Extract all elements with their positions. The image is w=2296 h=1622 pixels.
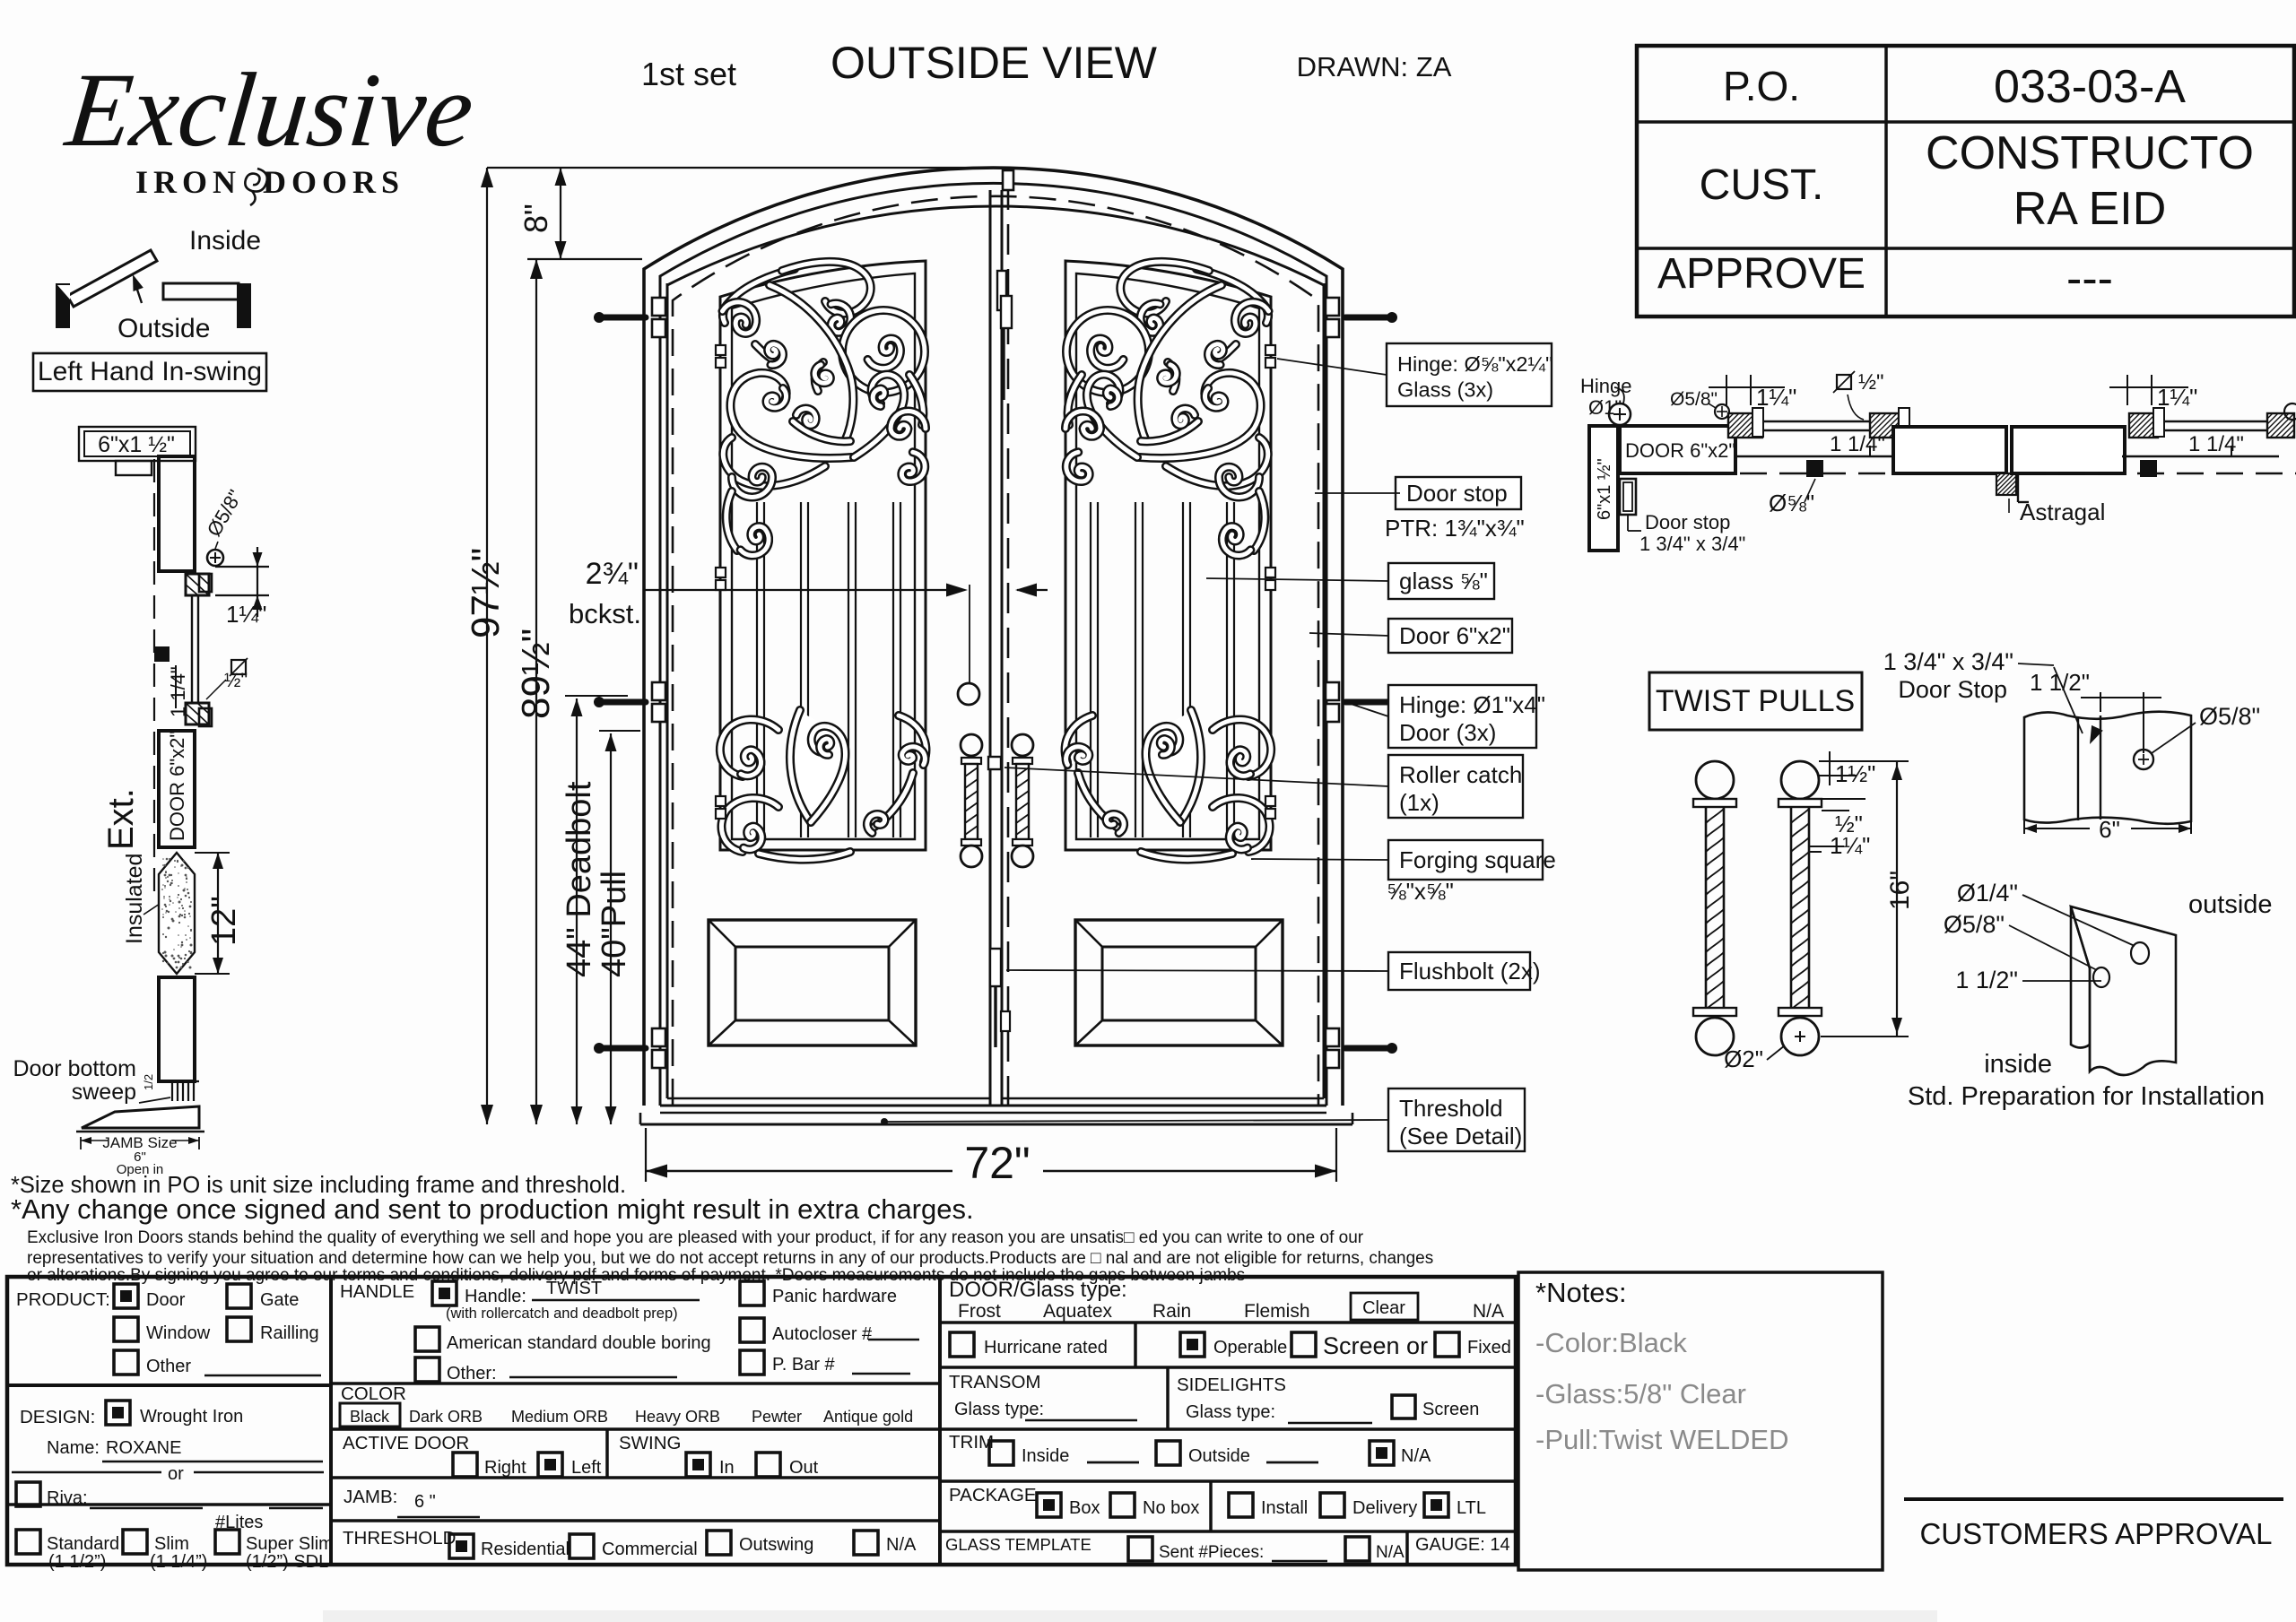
svg-text:DOOR/Glass type:: DOOR/Glass type: — [949, 1278, 1127, 1302]
svg-text:Door (3x): Door (3x) — [1399, 719, 1496, 746]
svg-text:Commercial: Commercial — [602, 1540, 698, 1559]
svg-text:glass ⅝": glass ⅝" — [1399, 568, 1488, 594]
svg-text:SWING: SWING — [619, 1433, 681, 1453]
svg-text:Name:: Name: — [47, 1438, 100, 1458]
svg-text:Medium ORB: Medium ORB — [511, 1408, 608, 1426]
svg-text:Door bottom: Door bottom — [13, 1056, 136, 1081]
svg-text:(1/2”) SDL: (1/2”) SDL — [246, 1552, 328, 1572]
svg-text:---: --- — [2066, 253, 2113, 305]
svg-text:(See Detail): (See Detail) — [1399, 1123, 1522, 1149]
svg-text:Flushbolt (2x): Flushbolt (2x) — [1399, 958, 1541, 984]
svg-text:1st set: 1st set — [641, 56, 736, 92]
svg-text:Out: Out — [789, 1458, 819, 1478]
svg-text:Outswing: Outswing — [739, 1535, 813, 1555]
svg-text:8": 8" — [517, 204, 554, 233]
svg-text:COLOR: COLOR — [341, 1383, 406, 1404]
svg-text:Outside: Outside — [1188, 1446, 1250, 1466]
svg-text:Panic hardware: Panic hardware — [772, 1287, 897, 1306]
svg-text:CONSTRUCTO: CONSTRUCTO — [1926, 127, 2254, 179]
svg-text:Exclusive: Exclusive — [59, 51, 479, 169]
svg-text:72": 72" — [964, 1138, 1030, 1188]
svg-text:ROXANE: ROXANE — [106, 1438, 181, 1458]
svg-text:representatives to verify your: representatives to verify your situation… — [27, 1249, 1433, 1268]
svg-text:6": 6" — [2099, 816, 2120, 843]
svg-text:Dark ORB: Dark ORB — [409, 1408, 483, 1426]
svg-text:N/A: N/A — [1376, 1543, 1405, 1562]
svg-text:DOOR 6"x2": DOOR 6"x2" — [1625, 439, 1735, 462]
svg-text:Frost: Frost — [958, 1301, 1001, 1322]
svg-text:033-03-A: 033-03-A — [1994, 61, 2186, 113]
svg-text:1¼": 1¼" — [1756, 384, 1796, 411]
svg-text:Left: Left — [571, 1458, 602, 1478]
svg-text:(1 1/2”): (1 1/2”) — [48, 1552, 106, 1572]
svg-text:Door: Door — [146, 1290, 186, 1310]
svg-text:1 1/2": 1 1/2" — [1955, 967, 2018, 993]
svg-text:12": 12" — [205, 896, 243, 946]
svg-text:½": ½" — [224, 669, 248, 691]
svg-text:Ø1": Ø1" — [1588, 396, 1622, 419]
svg-text:1 1/2": 1 1/2" — [2030, 669, 2090, 696]
svg-text:DESIGN:: DESIGN: — [20, 1407, 95, 1427]
svg-text:No box: No box — [1143, 1498, 1199, 1518]
svg-text:Black: Black — [350, 1408, 390, 1426]
svg-text:P.O.: P.O. — [1723, 63, 1800, 109]
svg-text:Ø2": Ø2" — [1724, 1045, 1763, 1072]
svg-text:Forging square: Forging square — [1399, 846, 1556, 873]
svg-text:PRODUCT:: PRODUCT: — [16, 1289, 110, 1310]
svg-text:Glass (3x): Glass (3x) — [1397, 378, 1493, 402]
svg-text:16": 16" — [1885, 871, 1915, 910]
svg-text:Operable: Operable — [1213, 1338, 1287, 1357]
svg-text:Door Stop: Door Stop — [1898, 676, 2007, 703]
svg-text:Super Slim: Super Slim — [246, 1534, 334, 1554]
svg-text:GLASS TEMPLATE: GLASS TEMPLATE — [945, 1535, 1091, 1554]
svg-text:TRANSOM: TRANSOM — [949, 1372, 1041, 1392]
svg-text:(1 1/4”): (1 1/4”) — [150, 1552, 207, 1572]
svg-text:sweep: sweep — [72, 1080, 136, 1105]
svg-text:or: or — [168, 1464, 184, 1484]
svg-text:Slim: Slim — [154, 1534, 189, 1554]
svg-text:In: In — [719, 1458, 735, 1478]
svg-text:1 1/4": 1 1/4" — [1830, 432, 1885, 456]
svg-text:inside: inside — [1984, 1050, 2052, 1079]
svg-text:American standard double borin: American standard double boring — [447, 1333, 711, 1353]
svg-text:Fixed: Fixed — [1467, 1338, 1511, 1357]
svg-text:1 3/4" x 3/4": 1 3/4" x 3/4" — [1639, 533, 1745, 555]
svg-text:1/2: 1/2 — [142, 1074, 155, 1090]
svg-text:1¼": 1¼" — [226, 601, 266, 628]
svg-text:Ø5/8": Ø5/8" — [1944, 911, 2005, 938]
svg-text:40"Pull: 40"Pull — [596, 871, 633, 977]
svg-text:Astragal: Astragal — [2020, 499, 2105, 525]
svg-text:Door 6"x2": Door 6"x2" — [1399, 622, 1510, 649]
svg-text:Residential: Residential — [481, 1540, 570, 1559]
svg-text:CUST.: CUST. — [1700, 161, 1824, 209]
svg-text:⅝"x⅝": ⅝"x⅝" — [1387, 878, 1454, 905]
svg-text:CUSTOMERS APPROVAL: CUSTOMERS APPROVAL — [1919, 1517, 2272, 1550]
svg-text:Threshold: Threshold — [1399, 1095, 1503, 1122]
svg-text:IRON: IRON — [135, 164, 241, 200]
svg-text:Delivery: Delivery — [1352, 1498, 1417, 1518]
svg-text:TRIM: TRIM — [949, 1432, 994, 1453]
svg-text:Ø5/8": Ø5/8" — [2199, 703, 2260, 730]
svg-text:(1x): (1x) — [1399, 789, 1439, 816]
svg-text:Inside: Inside — [189, 226, 261, 256]
svg-text:Box: Box — [1069, 1498, 1100, 1518]
svg-text:Autocloser #: Autocloser # — [772, 1324, 873, 1344]
svg-text:N/A: N/A — [1401, 1446, 1431, 1466]
svg-text:Door stop: Door stop — [1406, 480, 1508, 507]
svg-text:Outside: Outside — [117, 314, 210, 343]
svg-text:Glass type:: Glass type: — [1186, 1402, 1275, 1422]
svg-text:Sent #Pieces:: Sent #Pieces: — [1159, 1543, 1264, 1562]
svg-text:bckst.: bckst. — [569, 598, 641, 629]
svg-text:Std. Preparation for Installat: Std. Preparation for Installation — [1908, 1082, 2265, 1111]
svg-text:Clear: Clear — [1362, 1298, 1405, 1318]
svg-text:Ø⅝": Ø⅝" — [1769, 490, 1814, 516]
svg-text:N/A: N/A — [1473, 1301, 1504, 1322]
svg-text:6 ": 6 " — [414, 1492, 436, 1512]
svg-text:Antique gold: Antique gold — [823, 1408, 913, 1426]
svg-text:Window: Window — [146, 1323, 211, 1343]
svg-text:2¾": 2¾" — [586, 557, 639, 591]
svg-text:SIDELIGHTS: SIDELIGHTS — [1177, 1375, 1286, 1395]
svg-text:1½": 1½" — [1835, 760, 1875, 787]
svg-text:ACTIVE DOOR: ACTIVE DOOR — [343, 1433, 469, 1453]
svg-text:Flemish: Flemish — [1244, 1301, 1310, 1322]
svg-text:-Pull:Twist WELDED: -Pull:Twist WELDED — [1535, 1424, 1788, 1455]
svg-text:Gate: Gate — [260, 1290, 299, 1310]
svg-text:*Any change once signed and se: *Any change once signed and sent to prod… — [11, 1193, 974, 1225]
svg-text:P. Bar #: P. Bar # — [772, 1355, 836, 1375]
svg-text:PTR: 1¾"x¾": PTR: 1¾"x¾" — [1385, 515, 1525, 542]
svg-text:6"x1 ½": 6"x1 ½" — [1595, 458, 1614, 520]
svg-text:½": ½" — [1858, 370, 1884, 395]
svg-text:Inside: Inside — [1022, 1446, 1069, 1466]
svg-text:Rain: Rain — [1152, 1301, 1191, 1322]
svg-text:TWIST: TWIST — [546, 1279, 602, 1298]
svg-text:TWIST PULLS: TWIST PULLS — [1656, 684, 1855, 718]
svg-text:JAMB:: JAMB: — [344, 1487, 397, 1507]
svg-text:Insulated: Insulated — [122, 854, 147, 944]
svg-text:N/A: N/A — [886, 1535, 917, 1555]
svg-text:1 1/4": 1 1/4" — [2188, 432, 2244, 456]
svg-text:Screen: Screen — [1422, 1400, 1479, 1419]
svg-text:(with rollercatch and deadbolt: (with rollercatch and deadbolt prep) — [446, 1305, 678, 1322]
svg-text:*Notes:: *Notes: — [1535, 1277, 1627, 1308]
svg-text:Ø1/4": Ø1/4" — [1957, 880, 2018, 906]
svg-text:89½": 89½" — [514, 629, 558, 719]
svg-text:Handle:: Handle: — [465, 1287, 526, 1306]
svg-text:THRESHOLD: THRESHOLD — [343, 1528, 456, 1548]
svg-text:1 1/4": 1 1/4" — [167, 666, 189, 717]
svg-text:Ø5/8": Ø5/8" — [1670, 389, 1718, 410]
svg-text:Glass type:: Glass type: — [954, 1400, 1044, 1419]
svg-text:Roller catch: Roller catch — [1399, 761, 1522, 788]
svg-text:97½": 97½" — [464, 548, 508, 638]
svg-text:Other:: Other: — [447, 1364, 497, 1383]
svg-text:OUTSIDE VIEW: OUTSIDE VIEW — [831, 38, 1158, 88]
svg-text:DRAWN: ZA: DRAWN: ZA — [1297, 51, 1452, 82]
svg-text:1¼": 1¼" — [1830, 832, 1870, 859]
svg-text:HANDLE: HANDLE — [340, 1281, 414, 1302]
svg-text:1¼": 1¼" — [2157, 384, 2197, 411]
svg-text:Heavy ORB: Heavy ORB — [635, 1408, 720, 1426]
svg-text:Hinge: Ø1"x4": Hinge: Ø1"x4" — [1399, 691, 1545, 718]
svg-text:Aquatex: Aquatex — [1043, 1301, 1113, 1322]
svg-text:outside: outside — [2188, 890, 2273, 919]
svg-text:Right: Right — [484, 1458, 526, 1478]
svg-text:Screen or: Screen or — [1323, 1332, 1428, 1359]
svg-text:Railling: Railling — [260, 1323, 319, 1343]
svg-text:-Glass:5/8" Clear: -Glass:5/8" Clear — [1535, 1378, 1746, 1409]
svg-text:Hurricane rated: Hurricane rated — [984, 1338, 1108, 1357]
svg-text:6"x1 ½": 6"x1 ½" — [98, 432, 175, 457]
svg-text:Door stop: Door stop — [1645, 511, 1730, 533]
svg-text:44" Deadbolt: 44" Deadbolt — [561, 781, 598, 977]
svg-text:DOOR 6"x2": DOOR 6"x2" — [166, 731, 188, 841]
svg-text:Install: Install — [1261, 1498, 1308, 1518]
svg-text:GAUGE: 14: GAUGE: 14 — [1415, 1535, 1510, 1555]
svg-text:LTL: LTL — [1457, 1498, 1486, 1518]
svg-text:Standard: Standard — [47, 1534, 119, 1554]
svg-text:Left Hand In-swing: Left Hand In-swing — [38, 357, 262, 386]
svg-text:Wrought Iron: Wrought Iron — [140, 1407, 243, 1427]
svg-text:RA EID: RA EID — [2013, 183, 2167, 235]
svg-text:-Color:Black: -Color:Black — [1535, 1327, 1687, 1358]
svg-text:1 3/4" x 3/4": 1 3/4" x 3/4" — [1883, 648, 2013, 675]
svg-text:APPROVE: APPROVE — [1657, 250, 1865, 298]
svg-text:DOORS: DOORS — [263, 164, 404, 200]
svg-text:Ext.: Ext. — [101, 788, 141, 850]
svg-text:Exclusive Iron Doors stands be: Exclusive Iron Doors stands behind the q… — [27, 1228, 1364, 1247]
svg-text:PACKAGE: PACKAGE — [949, 1485, 1037, 1505]
svg-text:Pewter: Pewter — [752, 1408, 802, 1426]
svg-text:Other: Other — [146, 1357, 191, 1376]
svg-text:Hinge: Ø⅝"x2¼": Hinge: Ø⅝"x2¼" — [1397, 352, 1552, 376]
